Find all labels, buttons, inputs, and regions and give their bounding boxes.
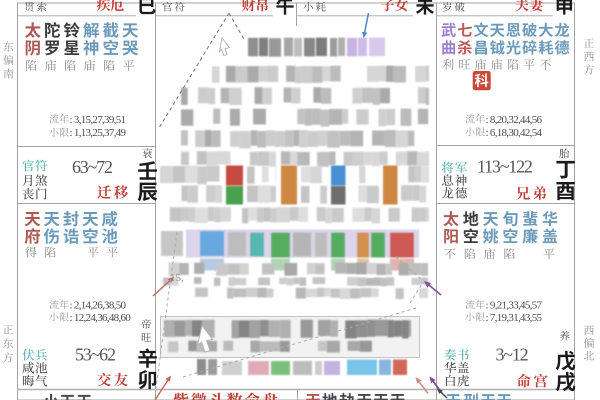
svg-text:3~12: 3~12 [496, 345, 528, 365]
svg-text:: 3,15,27,39,51: : 3,15,27,39,51 [70, 114, 126, 126]
svg-text:: 7,19,31,43,55: : 7,19,31,43,55 [486, 312, 543, 324]
svg-text:63~72: 63~72 [72, 157, 112, 177]
svg-text:: 8,20,32,44,56: : 8,20,32,44,56 [486, 114, 543, 126]
svg-text:53~62: 53~62 [75, 345, 115, 365]
svg-text:113~122: 113~122 [477, 157, 532, 177]
svg-text:: 12,24,36,48,60: : 12,24,36,48,60 [70, 312, 132, 324]
svg-text:: 9,21,33,45,57: : 9,21,33,45,57 [486, 299, 543, 311]
svg-text:: 1,13,25,37,49: : 1,13,25,37,49 [70, 127, 127, 139]
svg-text:: 6,18,30,42,54: : 6,18,30,42,54 [486, 127, 543, 139]
svg-text:: 2,14,26,38,50: : 2,14,26,38,50 [70, 299, 127, 311]
